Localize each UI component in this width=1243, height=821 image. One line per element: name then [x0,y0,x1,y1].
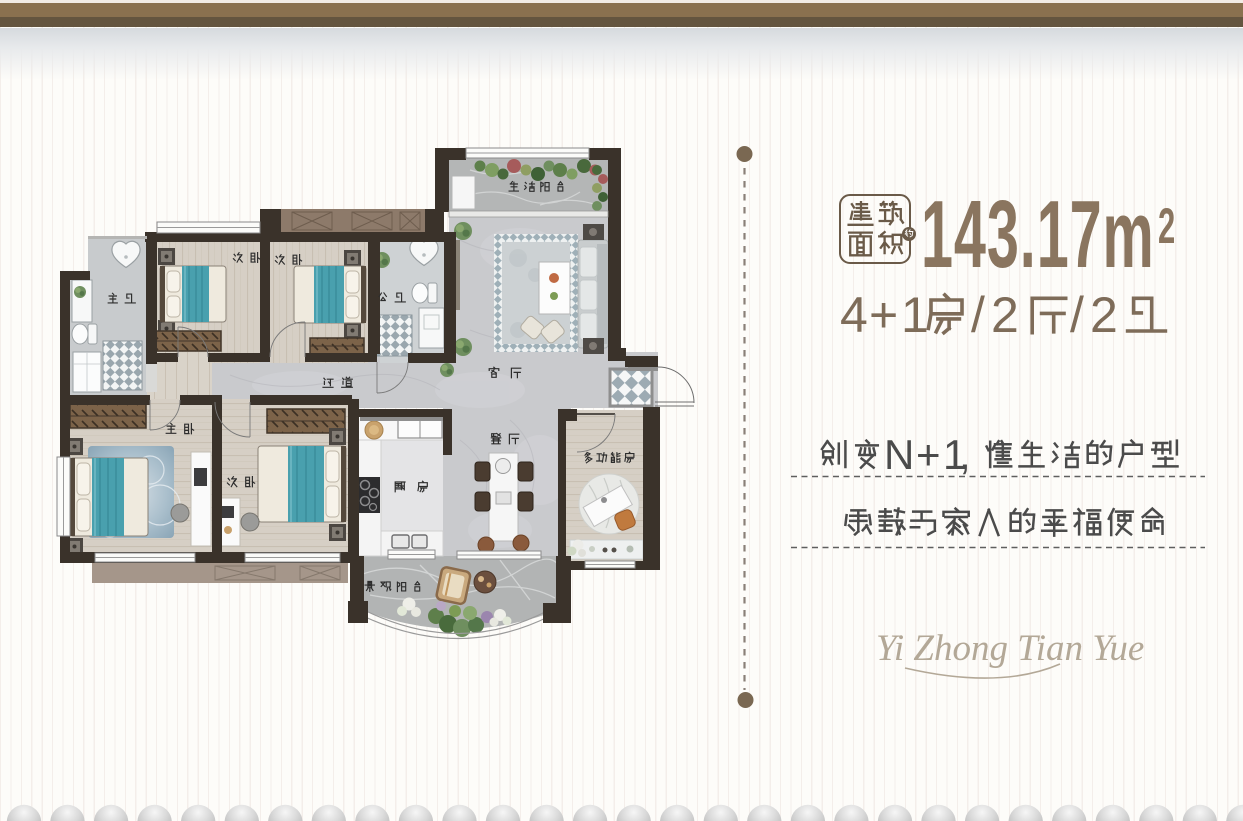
svg-text:/: / [971,287,985,343]
svg-text:1: 1 [901,287,929,343]
svg-text:143.17m: 143.17m [921,180,1155,288]
svg-text:,: , [959,431,971,478]
svg-text:2: 2 [1158,197,1175,253]
svg-text:+: + [916,431,941,478]
svg-text:+: + [869,287,898,343]
svg-text:2: 2 [991,287,1019,343]
svg-text:4: 4 [840,287,868,343]
svg-text:N: N [884,431,914,478]
svg-text:2: 2 [1090,287,1118,343]
svg-text:Yi Zhong Tian Yue: Yi Zhong Tian Yue [876,628,1144,669]
svg-text:/: / [1070,287,1084,343]
